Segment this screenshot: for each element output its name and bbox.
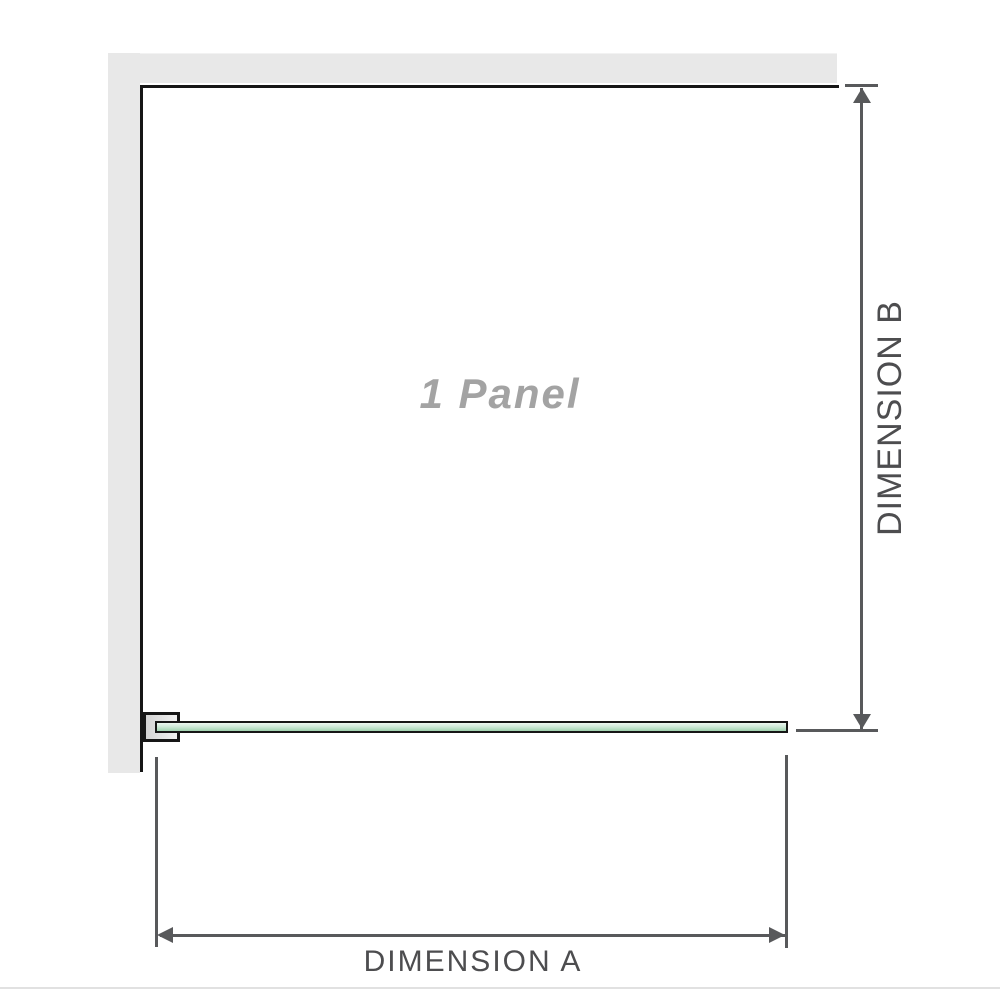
arrow-left-icon	[157, 927, 173, 943]
arrow-right-icon	[769, 927, 785, 943]
arrow-down-icon	[853, 714, 871, 729]
panel-left-edge	[140, 85, 143, 772]
wall-left-band	[108, 53, 140, 773]
panel-top-edge	[140, 85, 839, 88]
bottom-divider-line	[0, 987, 1000, 989]
shower-panel-diagram: 1 Panel DIMENSION B DIMENSION A	[0, 0, 1000, 1000]
dimension-a-left-extension	[155, 757, 158, 947]
dimension-a-line	[160, 934, 785, 937]
dimension-b-bottom-tick	[796, 729, 878, 732]
panel-count-label: 1 Panel	[300, 368, 700, 420]
dimension-a-right-extension	[785, 755, 788, 948]
dimension-b-top-tick	[845, 84, 878, 87]
glass-panel-bar	[155, 721, 788, 733]
wall-top-band	[108, 53, 837, 83]
dimension-b-label: DIMENSION B	[868, 268, 912, 568]
arrow-up-icon	[853, 88, 871, 103]
dimension-a-label: DIMENSION A	[273, 946, 673, 978]
dimension-b-line	[860, 88, 863, 729]
